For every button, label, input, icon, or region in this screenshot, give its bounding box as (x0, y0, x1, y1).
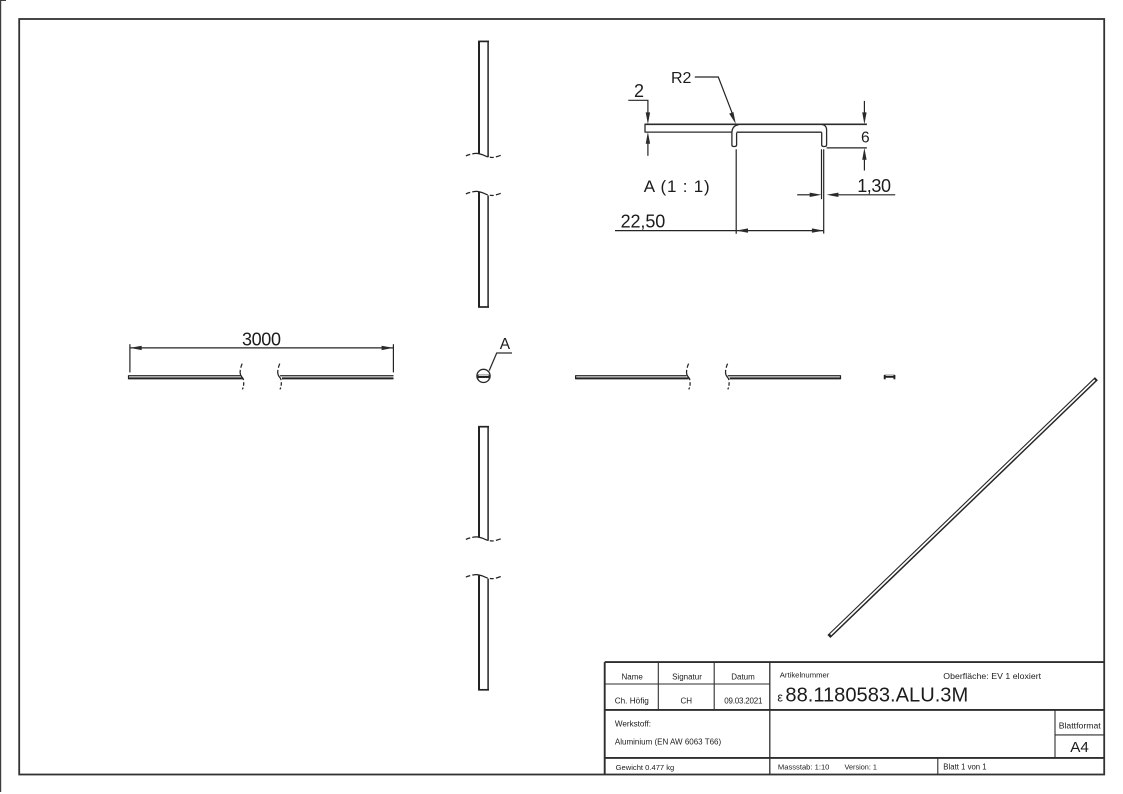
svg-text:Blattformat: Blattformat (1059, 720, 1102, 730)
svg-text:Aluminium (EN AW 6063 T66): Aluminium (EN AW 6063 T66) (615, 737, 722, 746)
svg-text:3000: 3000 (242, 329, 281, 349)
svg-text:Werkstoff:: Werkstoff: (615, 720, 651, 729)
svg-text:1,30: 1,30 (857, 176, 891, 196)
svg-text:R2: R2 (671, 70, 692, 87)
svg-text:A (1 : 1): A (1 : 1) (644, 177, 711, 196)
svg-text:09.03.2021: 09.03.2021 (724, 697, 763, 706)
svg-text:Blatt 1 von 1: Blatt 1 von 1 (943, 762, 986, 771)
svg-text:Massstab: 1:10: Massstab: 1:10 (778, 762, 830, 771)
svg-text:88.1180583.ALU.3M: 88.1180583.ALU.3M (785, 684, 968, 706)
svg-text:Name: Name (622, 672, 644, 681)
svg-text:Oberfläche: EV 1 eloxiert: Oberfläche: EV 1 eloxiert (943, 671, 1041, 681)
svg-text:CH: CH (681, 697, 693, 706)
svg-text:Datum: Datum (731, 672, 755, 681)
svg-text:2: 2 (634, 81, 644, 101)
svg-text:6: 6 (861, 129, 870, 146)
svg-text:Artikelnummer: Artikelnummer (780, 671, 830, 680)
svg-text:A4: A4 (1070, 739, 1089, 756)
svg-text:A: A (500, 336, 511, 353)
svg-text:ε: ε (777, 690, 783, 704)
svg-text:Signatur: Signatur (672, 672, 702, 681)
svg-text:22,50: 22,50 (621, 212, 666, 232)
svg-text:Version: 1: Version: 1 (845, 762, 877, 771)
svg-text:Ch. Höfig: Ch. Höfig (615, 697, 650, 706)
svg-text:Gewicht 0.477 kg: Gewicht 0.477 kg (616, 763, 675, 772)
